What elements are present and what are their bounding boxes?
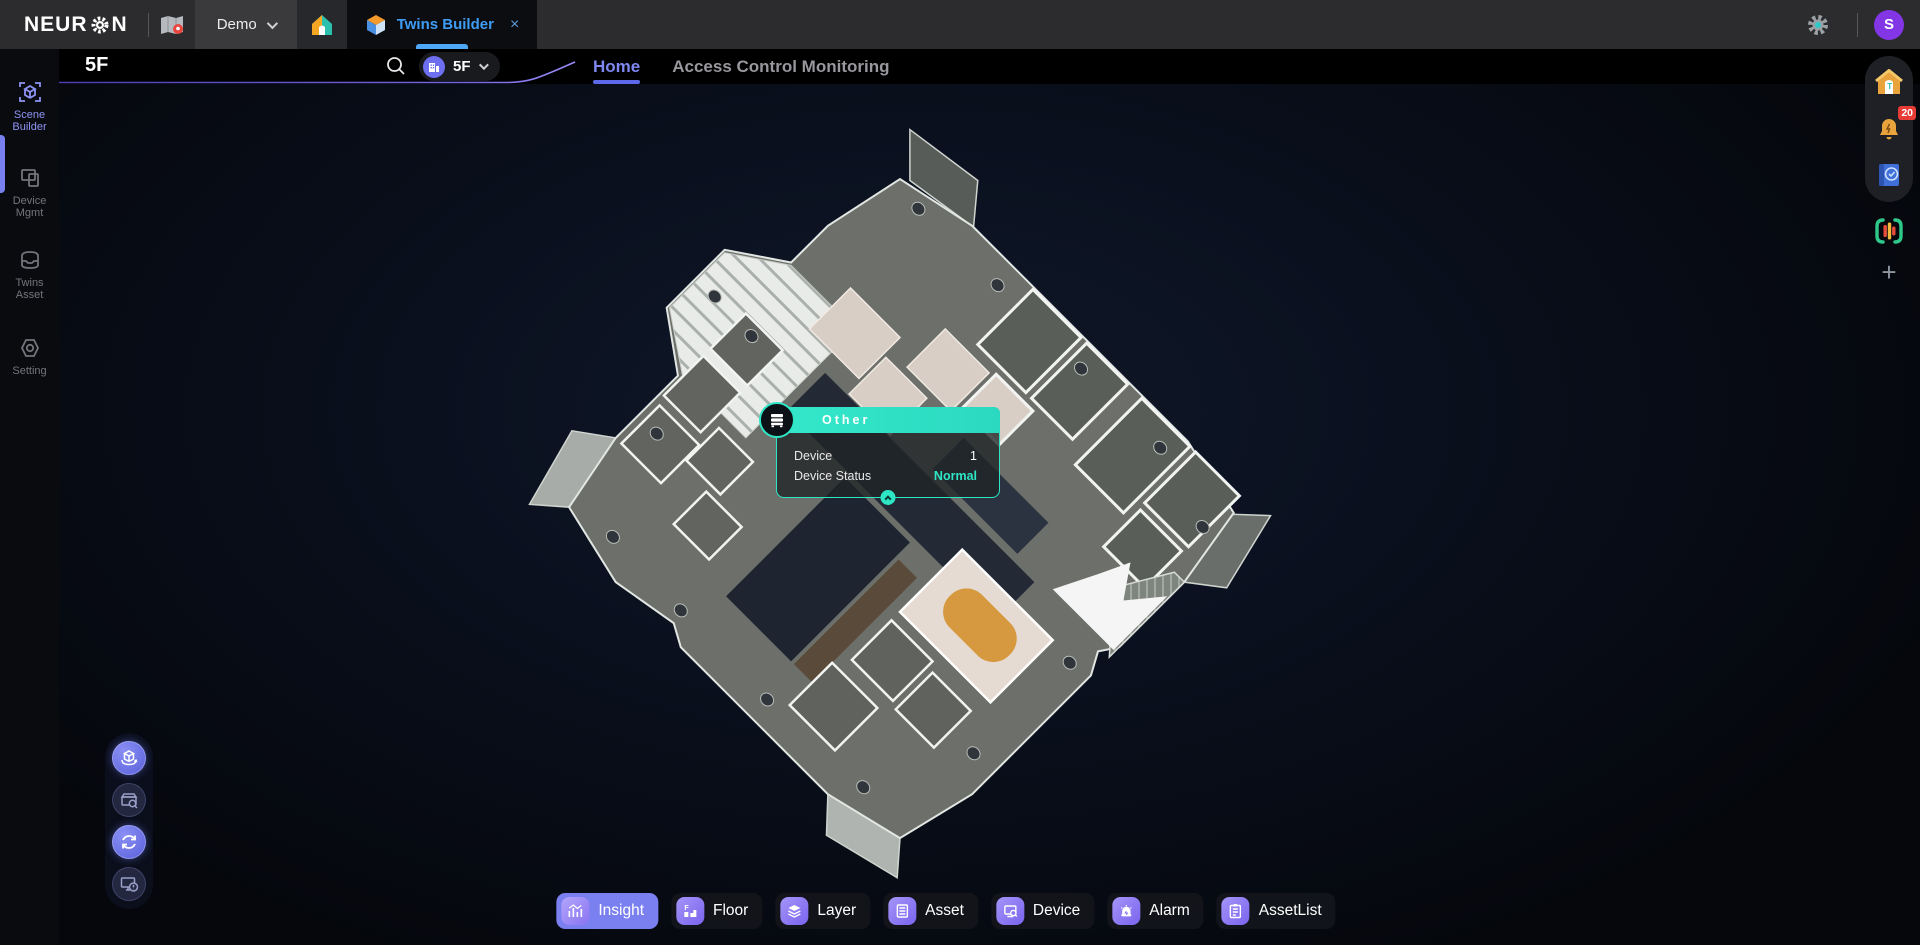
toolbar-button-floor[interactable]: F Floor	[671, 893, 762, 929]
tooltip-body: Device 1 Device Status Normal	[776, 433, 1000, 498]
logbook-app-icon[interactable]	[1874, 160, 1904, 190]
project-label: Demo	[217, 16, 257, 33]
refresh-scene-button[interactable]	[112, 825, 146, 859]
insight-chart-icon	[561, 897, 589, 925]
device-search-icon	[996, 897, 1024, 925]
asset-list-icon	[1222, 897, 1250, 925]
logo-text-right: N	[112, 13, 128, 37]
sidebar-item-label: Scene Builder	[4, 109, 56, 133]
tooltip-row-label: Device	[794, 449, 832, 463]
tab-twins-builder[interactable]: Twins Builder ×	[347, 0, 538, 49]
toolbar-button-device[interactable]: Device	[991, 893, 1094, 929]
svg-text:F: F	[684, 905, 689, 912]
toolbar-button-assetlist[interactable]: AssetList	[1217, 893, 1336, 929]
toolbar-label: Layer	[817, 902, 856, 920]
scene-tabs: Home Access Control Monitoring	[593, 49, 889, 84]
right-app-rail: T 20	[1864, 56, 1914, 284]
tab-home[interactable]: Home	[593, 57, 640, 77]
notification-count-badge: 20	[1898, 106, 1916, 120]
chevron-down-icon	[266, 17, 277, 28]
active-tab-indicator	[416, 44, 468, 49]
logo-text-left: NEUR	[24, 13, 88, 37]
floor-selector-label: 5F	[453, 58, 471, 75]
toolbar-label: AssetList	[1259, 902, 1322, 920]
view-3d-rotate-button[interactable]	[112, 741, 146, 775]
left-nav-sidebar: Scene Builder Device Mgmt Twins Asset Se…	[0, 49, 59, 945]
scene-header: 5F 5F Home Access Control Monitoring	[59, 49, 1920, 84]
scene-builder-cube-icon	[18, 80, 42, 104]
toolbar-label: Asset	[925, 902, 964, 920]
settings-gear-icon[interactable]	[1795, 13, 1841, 37]
tooltip-row-device-status: Device Status Normal	[794, 469, 977, 483]
alarm-light-icon	[1112, 897, 1140, 925]
asset-insight-app-icon[interactable]	[1874, 216, 1904, 246]
toolbar-label: Insight	[598, 902, 644, 920]
view-tools	[105, 733, 153, 909]
search-icon[interactable]	[385, 55, 409, 79]
floor-selector[interactable]: 5F	[419, 52, 500, 81]
app-bar: NEUR N Demo Twins Builder ×	[0, 0, 1920, 49]
tooltip-anchor-marker	[881, 490, 896, 505]
screen-alert-tool-button[interactable]	[112, 867, 146, 901]
project-selector[interactable]: Demo	[195, 0, 297, 49]
toolbar-button-insight[interactable]: Insight	[556, 893, 658, 929]
twins-asset-tray-icon	[18, 248, 42, 272]
tooltip-row-value: 1	[970, 449, 977, 463]
bottom-toolbar: Insight F Floor Layer	[556, 893, 1335, 929]
sidebar-item-twins-asset[interactable]: Twins Asset	[0, 248, 59, 318]
toolbar-button-asset[interactable]: Asset	[883, 893, 978, 929]
map-tooltip: Other Device 1 Device Status Normal	[776, 407, 1000, 498]
asset-cabinet-icon	[888, 897, 916, 925]
toolbar-label: Device	[1033, 902, 1080, 920]
sidebar-item-device-mgmt[interactable]: Device Mgmt	[0, 166, 59, 236]
twins-builder-cube-icon	[365, 14, 387, 36]
logo-gear-icon	[90, 15, 110, 35]
home-icon	[309, 13, 335, 37]
chevron-down-icon	[478, 60, 488, 70]
sidebar-item-label: Device Mgmt	[4, 195, 56, 219]
tab-label: Twins Builder	[397, 16, 494, 33]
building-icon	[423, 56, 445, 78]
tooltip-row-label: Device Status	[794, 469, 871, 483]
home-tab[interactable]	[297, 0, 347, 49]
svg-text:T: T	[1887, 82, 1892, 91]
sidebar-item-label: Twins Asset	[4, 277, 56, 301]
notifications-bell-icon[interactable]: 20	[1874, 114, 1904, 144]
tooltip-title: Other	[776, 407, 1000, 433]
neuron-logo: NEUR N	[0, 0, 148, 49]
toolbar-label: Alarm	[1149, 902, 1189, 920]
sidebar-item-label: Setting	[4, 365, 56, 377]
tab-access-control-monitoring[interactable]: Access Control Monitoring	[672, 57, 889, 77]
scene-3d-canvas[interactable]: Other Device 1 Device Status Normal	[59, 84, 1920, 945]
map-pin-icon[interactable]	[149, 0, 195, 49]
floor-title: 5F	[85, 54, 108, 77]
device-search-tool-button[interactable]	[112, 783, 146, 817]
toolbar-label: Floor	[713, 902, 748, 920]
add-app-icon[interactable]: +	[1881, 260, 1896, 284]
device-mgmt-icon	[18, 166, 42, 190]
right-rail-apps: T 20	[1865, 56, 1913, 202]
divider	[1857, 13, 1858, 37]
tooltip-row-value: Normal	[934, 469, 977, 483]
sidebar-item-scene-builder[interactable]: Scene Builder	[0, 80, 59, 150]
floor-stairs-icon: F	[676, 897, 704, 925]
device-category-icon	[759, 402, 795, 438]
toolbar-button-alarm[interactable]: Alarm	[1107, 893, 1203, 929]
user-avatar[interactable]: S	[1874, 10, 1904, 40]
toolbar-button-layer[interactable]: Layer	[775, 893, 870, 929]
tooltip-row-device: Device 1	[794, 449, 977, 463]
sidebar-item-setting[interactable]: Setting	[0, 336, 59, 406]
close-tab-icon[interactable]: ×	[510, 16, 519, 34]
floor-plan-3d[interactable]	[520, 128, 1280, 888]
home-app-icon[interactable]: T	[1874, 68, 1904, 98]
setting-gear-icon	[18, 336, 42, 360]
layers-icon	[780, 897, 808, 925]
